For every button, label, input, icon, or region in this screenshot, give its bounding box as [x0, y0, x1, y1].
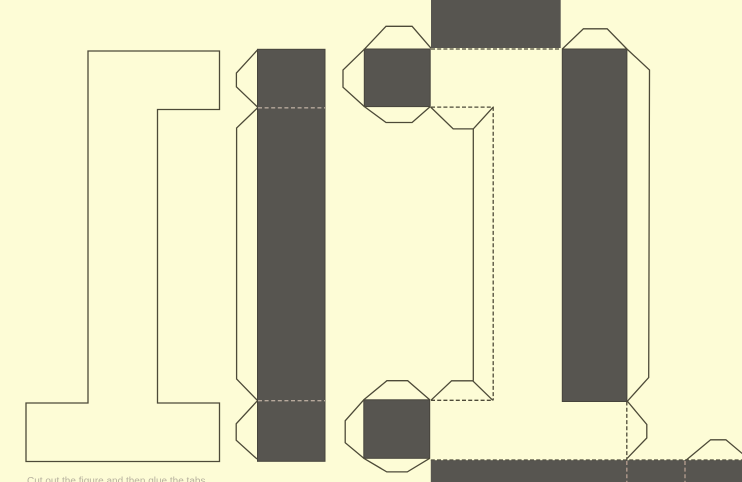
svg-text:Cut out the figure and then gl: Cut out the figure and then glue the tab… — [27, 476, 205, 482]
